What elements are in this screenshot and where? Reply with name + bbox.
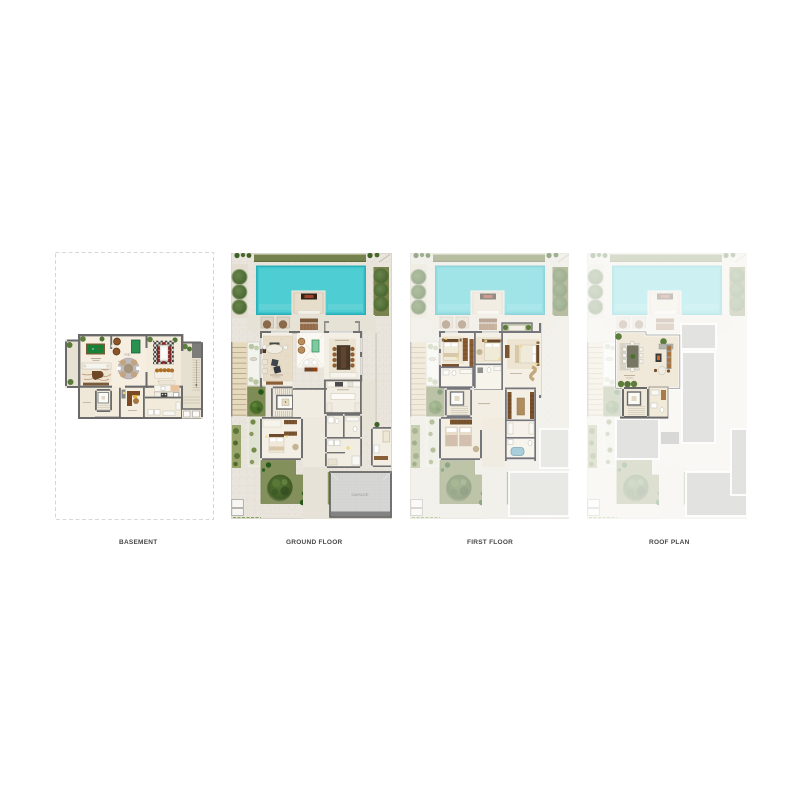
svg-text:VOID: VOID [124, 353, 130, 357]
svg-text:GARAGE: GARAGE [351, 492, 368, 497]
